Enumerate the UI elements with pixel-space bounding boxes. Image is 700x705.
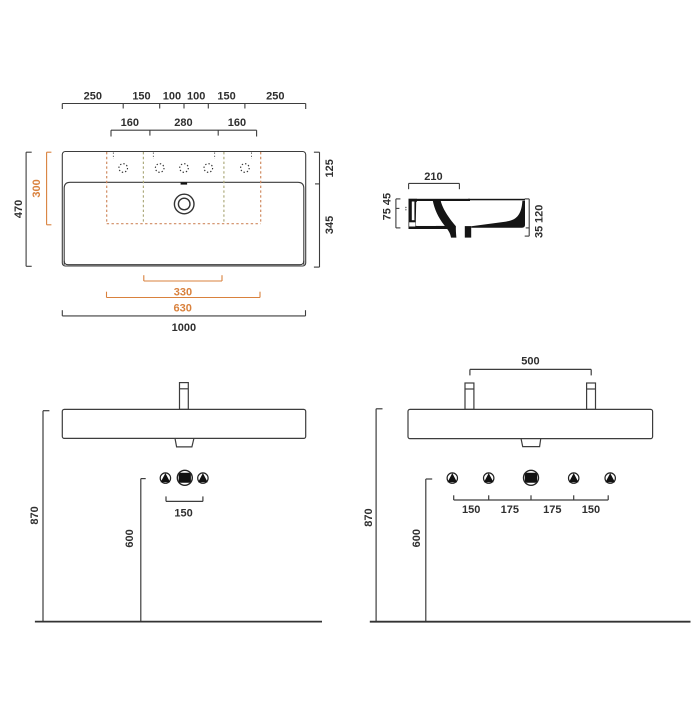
svg-text:150: 150 <box>217 91 235 103</box>
svg-text:150: 150 <box>582 504 600 516</box>
svg-text:630: 630 <box>174 302 192 314</box>
svg-text:330: 330 <box>174 287 192 299</box>
svg-text:160: 160 <box>121 117 139 129</box>
svg-text:600: 600 <box>411 529 423 547</box>
svg-text:120: 120 <box>534 205 546 223</box>
svg-text:100: 100 <box>163 91 181 103</box>
svg-text:175: 175 <box>543 504 561 516</box>
svg-text:150: 150 <box>174 508 192 520</box>
svg-text:280: 280 <box>174 117 192 129</box>
svg-text:870: 870 <box>29 506 41 524</box>
svg-text:250: 250 <box>84 91 102 103</box>
svg-text:210: 210 <box>424 171 442 183</box>
svg-text:470: 470 <box>13 200 25 218</box>
svg-text:300: 300 <box>31 179 43 197</box>
svg-text:100: 100 <box>187 91 205 103</box>
svg-text:600: 600 <box>124 529 136 547</box>
svg-text:250: 250 <box>266 91 284 103</box>
svg-text:500: 500 <box>521 356 539 368</box>
svg-text:125: 125 <box>324 159 336 177</box>
svg-text:75 45: 75 45 <box>382 193 394 221</box>
svg-text:150: 150 <box>462 504 480 516</box>
svg-text:160: 160 <box>228 117 246 129</box>
svg-text:1000: 1000 <box>172 322 196 334</box>
svg-text:870: 870 <box>363 508 375 526</box>
svg-text:35: 35 <box>534 226 546 238</box>
svg-text:175: 175 <box>501 504 519 516</box>
svg-text:150: 150 <box>132 91 150 103</box>
svg-text:345: 345 <box>324 216 336 234</box>
